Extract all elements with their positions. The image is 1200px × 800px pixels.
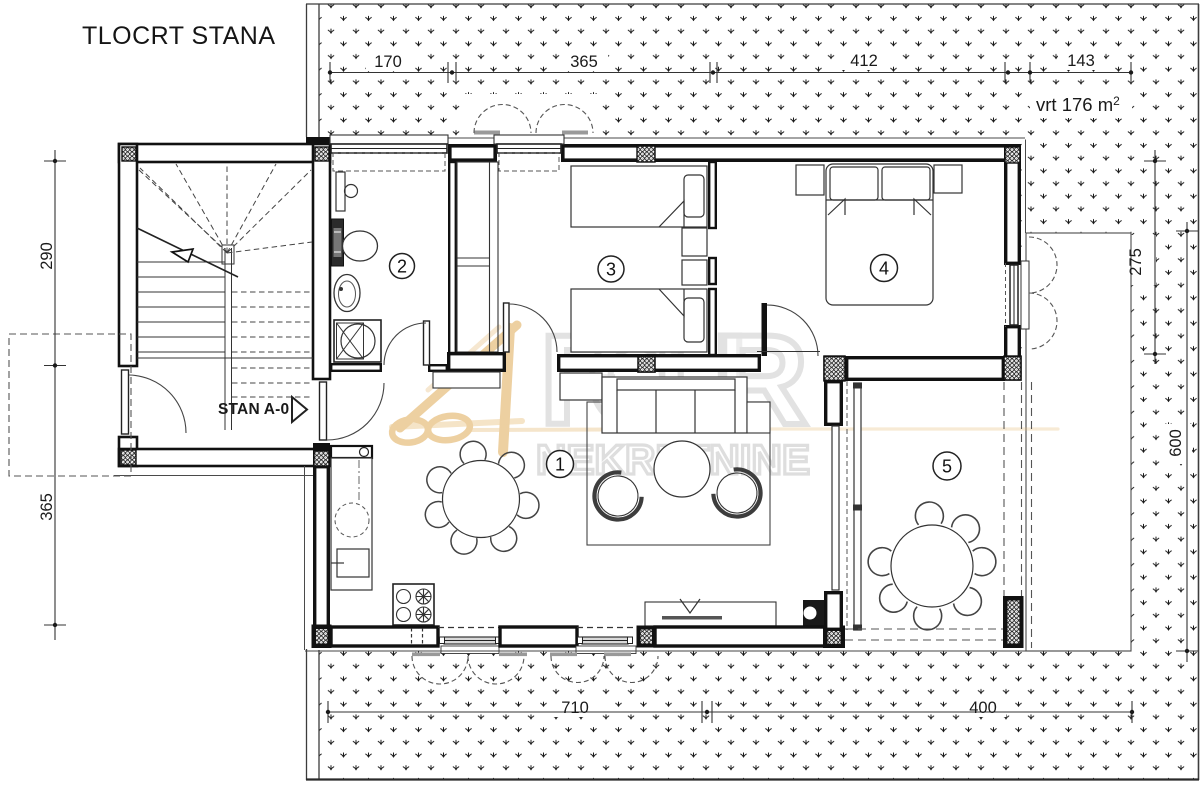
svg-text:STAN A-0: STAN A-0 [218,401,289,418]
svg-text:710: 710 [561,699,589,717]
svg-text:365: 365 [38,493,56,521]
svg-text:TLOCRT STANA: TLOCRT STANA [82,22,276,50]
svg-text:5: 5 [942,457,952,477]
svg-text:365: 365 [570,53,598,71]
svg-text:4: 4 [879,259,889,279]
svg-text:143: 143 [1067,52,1095,70]
svg-text:412: 412 [850,52,878,70]
svg-text:1: 1 [555,455,565,475]
svg-text:3: 3 [606,260,616,280]
svg-text:2: 2 [397,257,407,277]
svg-text:170: 170 [374,53,402,71]
svg-text:600: 600 [1167,429,1185,457]
svg-text:275: 275 [1127,248,1145,276]
svg-text:vrt 176 m2: vrt 176 m2 [1036,94,1120,115]
svg-text:400: 400 [969,699,997,717]
svg-text:290: 290 [38,242,56,270]
